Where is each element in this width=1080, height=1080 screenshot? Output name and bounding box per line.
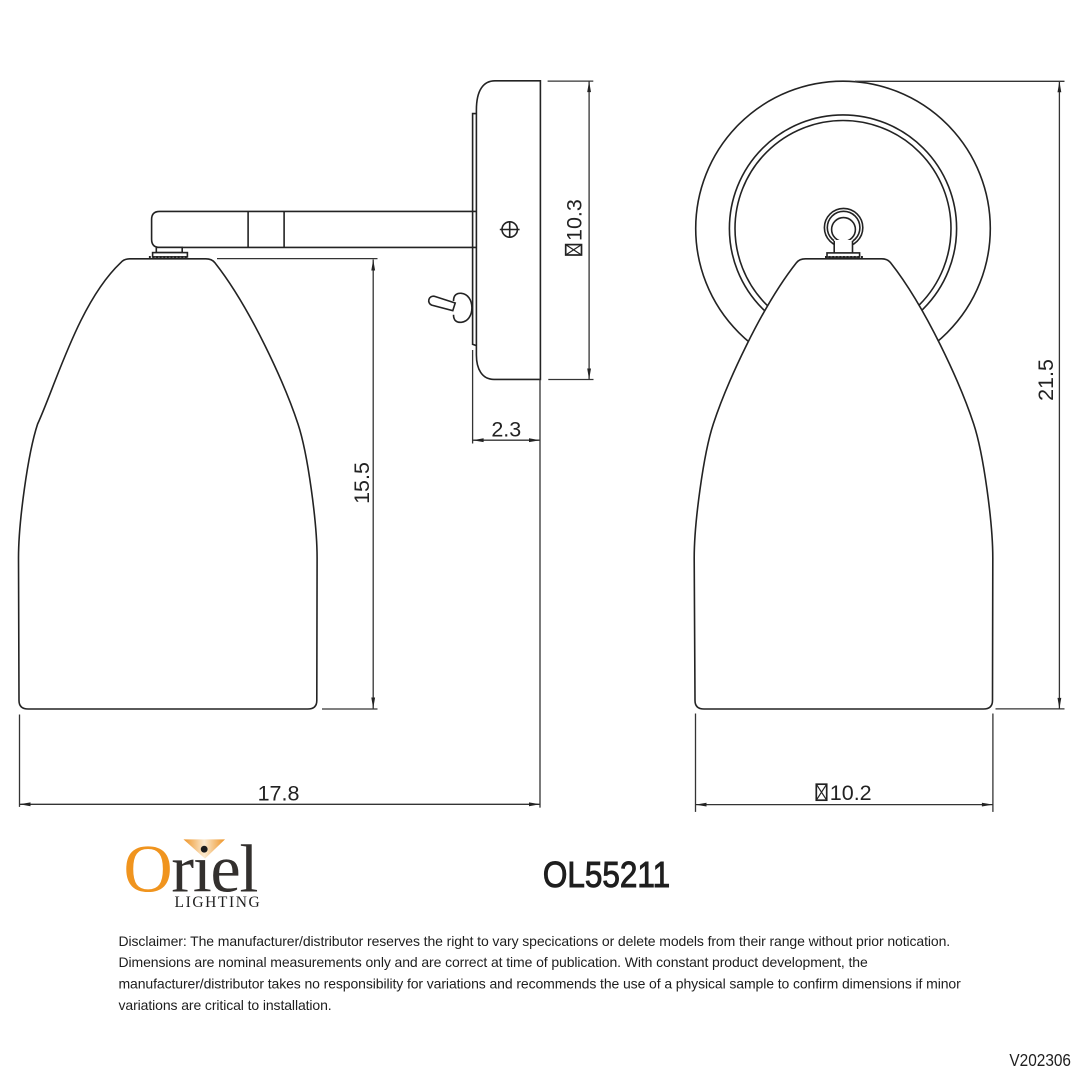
svg-text:LIGHTING: LIGHTING [175,894,262,911]
svg-text:10.2: 10.2 [830,781,872,805]
svg-text:Dimensions are nominal measure: Dimensions are nominal measurements only… [119,954,868,970]
svg-text:manufacturer/distributor takes: manufacturer/distributor takes no respon… [119,976,962,992]
svg-text:V202306: V202306 [1009,1051,1071,1070]
svg-text:variations are critical to ins: variations are critical to installation. [119,997,332,1013]
svg-text:10.3: 10.3 [563,199,587,241]
svg-text:Disclaimer: The manufacturer/d: Disclaimer: The manufacturer/distributor… [119,933,951,949]
svg-text:15.5: 15.5 [350,462,374,504]
svg-text:OL55211: OL55211 [543,855,670,895]
svg-text:21.5: 21.5 [1034,359,1058,401]
svg-text:2.3: 2.3 [491,418,521,442]
svg-text:17.8: 17.8 [258,782,300,806]
